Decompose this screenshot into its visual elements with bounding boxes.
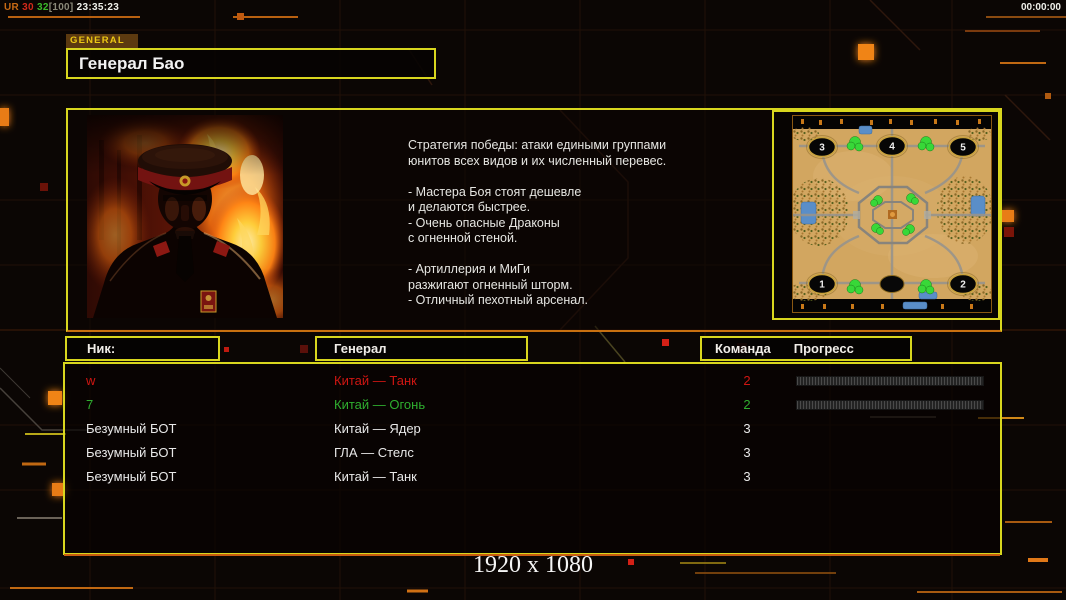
player-general: ГЛА — Стелс bbox=[334, 441, 414, 465]
player-general: Китай — Ядер bbox=[334, 417, 421, 441]
player-team: 2 bbox=[737, 393, 757, 417]
strategy-line bbox=[408, 247, 748, 263]
column-header-general: Генерал bbox=[315, 336, 528, 361]
net-fps: 30 bbox=[22, 2, 34, 13]
strategy-text: Стратегия победы: атаки едиными группами… bbox=[408, 138, 748, 309]
general-bao-portrait bbox=[87, 115, 283, 318]
player-team: 3 bbox=[737, 465, 757, 489]
spawn-label-5: 5 bbox=[960, 143, 966, 154]
general-tab: GENERAL bbox=[66, 34, 138, 48]
strategy-line: - Мастера Боя стоят дешевле bbox=[408, 185, 748, 201]
net-ping: 32 bbox=[37, 2, 49, 13]
player-progress-bar bbox=[796, 400, 984, 410]
spawn-label-4: 4 bbox=[889, 142, 895, 153]
player-team: 2 bbox=[737, 369, 757, 393]
team-header-label: Команда bbox=[715, 341, 771, 356]
general-title-text: Генерал Бао bbox=[79, 54, 184, 73]
strategy-line: - Артиллерия и МиГи bbox=[408, 262, 748, 278]
nick-header-label: Ник: bbox=[87, 341, 115, 356]
portrait-image bbox=[87, 115, 283, 318]
column-header-nick: Ник: bbox=[65, 336, 220, 361]
player-row: 7 Китай — Огонь 2 bbox=[65, 393, 1000, 417]
spawn-label-3: 3 bbox=[819, 143, 825, 154]
player-general: Китай — Танк bbox=[334, 369, 417, 393]
player-row: Безумный БОТ Китай — Ядер 3 bbox=[65, 417, 1000, 441]
player-team: 3 bbox=[737, 417, 757, 441]
strategy-line: - Отличный пехотный арсенал. bbox=[408, 293, 748, 309]
player-row: w Китай — Танк 2 bbox=[65, 369, 1000, 393]
general-header-label: Генерал bbox=[334, 341, 386, 356]
minimap-frame: 3 4 5 1 2 bbox=[792, 115, 992, 313]
clock: 23:35:23 bbox=[77, 2, 119, 13]
net-label: UR bbox=[4, 2, 19, 13]
strategy-line: юнитов всех видов и их численный перевес… bbox=[408, 154, 748, 170]
player-table: w Китай — Танк 2 7 Китай — Огонь 2 Безум… bbox=[63, 362, 1002, 555]
map-resolution: 1920 x 1080 bbox=[0, 552, 1066, 579]
strategy-line: и делаются быстрее. bbox=[408, 200, 748, 216]
minimap: 3 4 5 1 2 bbox=[793, 116, 991, 312]
loading-screen: UR 30 32[100] 23:35:23 00:00:00 GENERAL … bbox=[0, 0, 1066, 600]
strategy-line: - Очень опасные Драконы bbox=[408, 216, 748, 232]
player-nick: Безумный БОТ bbox=[86, 417, 176, 441]
player-nick: w bbox=[86, 369, 95, 393]
player-general: Китай — Танк bbox=[334, 465, 417, 489]
general-title: Генерал Бао bbox=[66, 48, 436, 79]
network-stats: UR 30 32[100] 23:35:23 bbox=[4, 2, 119, 13]
player-progress-bar bbox=[796, 376, 984, 386]
strategy-line bbox=[408, 169, 748, 185]
spawn-label-2: 2 bbox=[960, 280, 966, 291]
strategy-line: разжигают огненный шторм. bbox=[408, 278, 748, 294]
player-row: Безумный БОТ ГЛА — Стелс 3 bbox=[65, 441, 1000, 465]
strategy-line: Стратегия победы: атаки едиными группами bbox=[408, 138, 748, 154]
spawn-label-1: 1 bbox=[819, 280, 825, 291]
strategy-line: с огненной стеной. bbox=[408, 231, 748, 247]
player-row: Безумный БОТ Китай — Танк 3 bbox=[65, 465, 1000, 489]
player-nick: 7 bbox=[86, 393, 93, 417]
player-nick: Безумный БОТ bbox=[86, 465, 176, 489]
match-timer: 00:00:00 bbox=[1021, 2, 1061, 13]
player-nick: Безумный БОТ bbox=[86, 441, 176, 465]
progress-header-label: Прогресс bbox=[794, 341, 854, 356]
player-general: Китай — Огонь bbox=[334, 393, 425, 417]
minimap-box: 3 4 5 1 2 bbox=[772, 110, 1000, 320]
player-team: 3 bbox=[737, 441, 757, 465]
net-bracket: [100] bbox=[49, 2, 74, 13]
column-header-team-progress: КомандаПрогресс bbox=[700, 336, 912, 361]
